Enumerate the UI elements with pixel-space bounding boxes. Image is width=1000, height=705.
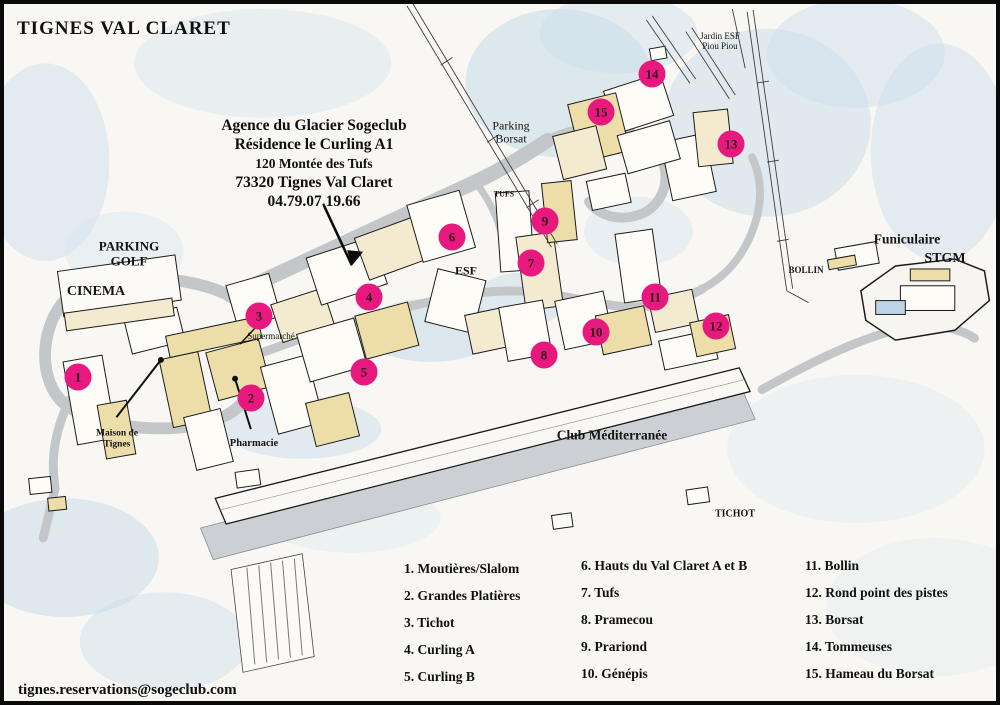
map-marker-11: 11 (642, 284, 669, 311)
agency-address-line: 120 Montée des Tufs (192, 154, 436, 173)
contact-email: tignes.reservations@sogeclub.com (18, 682, 237, 699)
map-marker-5: 5 (351, 359, 378, 386)
legend-item-12: 12. Rond point des pistes (805, 586, 948, 600)
map-label-parking-golf: PARKINGGOLF (99, 239, 159, 268)
agency-address-line: Résidence le Curling A1 (192, 135, 436, 154)
map-label-supermarche: Supermarché (247, 331, 294, 341)
legend-item-6: 6. Hauts du Val Claret A et B (581, 559, 747, 573)
legend-column-2: 6. Hauts du Val Claret A et B7. Tufs8. P… (581, 559, 747, 681)
page-title: TIGNES VAL CLARET (17, 18, 231, 40)
map-marker-2: 2 (238, 385, 265, 412)
map-label-esf: ESF (455, 264, 477, 277)
agency-address-block: Agence du Glacier SogeclubRésidence le C… (192, 116, 436, 211)
slalom-area (231, 554, 314, 673)
map-label-tufs-lift-station: TUFS (494, 191, 514, 200)
legend-item-3: 3. Tichot (404, 616, 520, 630)
map-label-bollin: BOLLIN (788, 265, 823, 275)
map-label-stgm: STGM (924, 251, 965, 267)
map-label-jardin-esf-piou-piou: Jardin ESFPiou Piou (700, 31, 740, 51)
legend-item-15: 15. Hameau du Borsat (805, 667, 948, 681)
map-label-parking-borsat: ParkingBorsat (492, 120, 529, 147)
legend-item-11: 11. Bollin (805, 559, 948, 573)
agency-address-line: Agence du Glacier Sogeclub (192, 116, 436, 135)
legend-item-4: 4. Curling A (404, 643, 520, 657)
legend-column-1: 1. Moutières/Slalom2. Grandes Platières3… (404, 562, 520, 684)
map-marker-1: 1 (65, 364, 92, 391)
map-marker-8: 8 (531, 342, 558, 369)
legend-item-10: 10. Génépis (581, 667, 747, 681)
legend-item-7: 7. Tufs (581, 586, 747, 600)
map-marker-9: 9 (532, 208, 559, 235)
map-label-club-mediterranee: Club Méditerranée (557, 427, 668, 442)
legend-item-8: 8. Pramecou (581, 613, 747, 627)
map-marker-7: 7 (518, 250, 545, 277)
legend-item-2: 2. Grandes Platières (404, 589, 520, 603)
map-label-tichot: TICHOT (715, 508, 755, 519)
map-marker-13: 13 (718, 131, 745, 158)
resort-map: TIGNES VAL CLARET Agence du Glacier Soge… (0, 0, 1000, 705)
map-marker-15: 15 (588, 99, 615, 126)
agency-address-line: 04.79.07.19.66 (192, 192, 436, 211)
legend-item-1: 1. Moutières/Slalom (404, 562, 520, 576)
map-marker-14: 14 (639, 61, 666, 88)
agency-address-line: 73320 Tignes Val Claret (192, 173, 436, 192)
map-label-maison-de-tignes: Maison deTignes (96, 428, 138, 449)
map-label-funiculaire: Funiculaire (874, 231, 941, 246)
legend-item-5: 5. Curling B (404, 670, 520, 684)
map-marker-4: 4 (356, 284, 383, 311)
legend-item-9: 9. Prariond (581, 640, 747, 654)
map-label-pharmacie: Pharmacie (230, 438, 278, 450)
map-label-cinema: CINEMA (67, 284, 125, 300)
map-marker-10: 10 (583, 319, 610, 346)
map-marker-6: 6 (439, 224, 466, 251)
map-marker-12: 12 (703, 313, 730, 340)
legend-item-13: 13. Borsat (805, 613, 948, 627)
legend-column-3: 11. Bollin12. Rond point des pistes13. B… (805, 559, 948, 681)
legend-item-14: 14. Tommeuses (805, 640, 948, 654)
map-marker-3: 3 (246, 303, 273, 330)
